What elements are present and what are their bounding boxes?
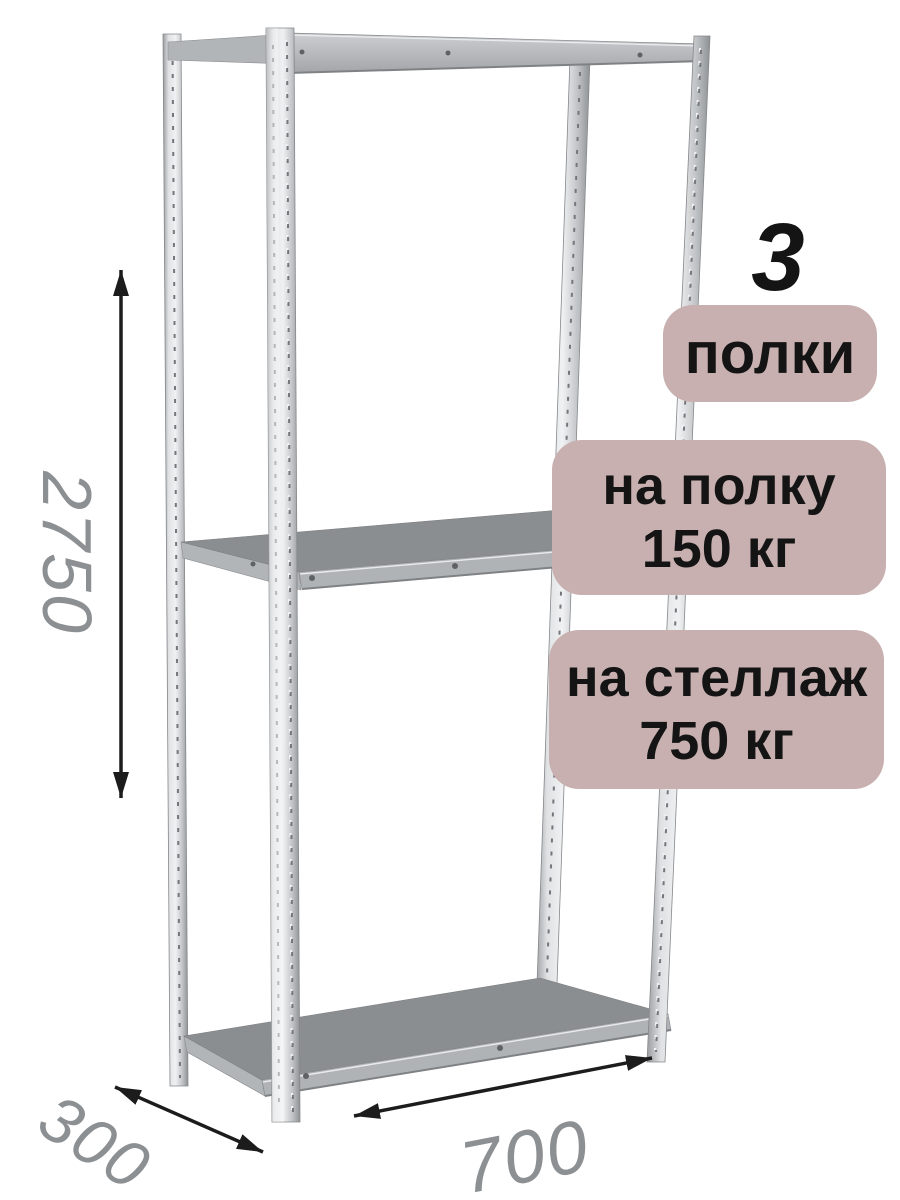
shelf-count-number: 3	[718, 208, 838, 308]
per-rack-load-line2: 750 кг	[639, 710, 794, 773]
shelf-count-badge: полки	[663, 305, 877, 402]
post-back-left	[163, 34, 188, 1086]
shelf-bottom	[184, 978, 671, 1096]
shelf-top	[168, 33, 704, 73]
per-rack-load-badge: на стеллаж 750 кг	[549, 630, 884, 789]
per-shelf-load-line1: на полку	[602, 455, 835, 518]
shelving-rack-illustration	[0, 0, 900, 1200]
shelf-count-badge-label: полки	[685, 320, 856, 387]
per-rack-load-line1: на стеллаж	[566, 647, 867, 710]
height-dimension-label: 2750	[27, 443, 107, 663]
product-image-canvas: 2750 300 700 3 полки на полку 150 кг на …	[0, 0, 900, 1200]
per-shelf-load-badge: на полку 150 кг	[552, 440, 886, 595]
per-shelf-load-line2: 150 кг	[642, 518, 797, 581]
